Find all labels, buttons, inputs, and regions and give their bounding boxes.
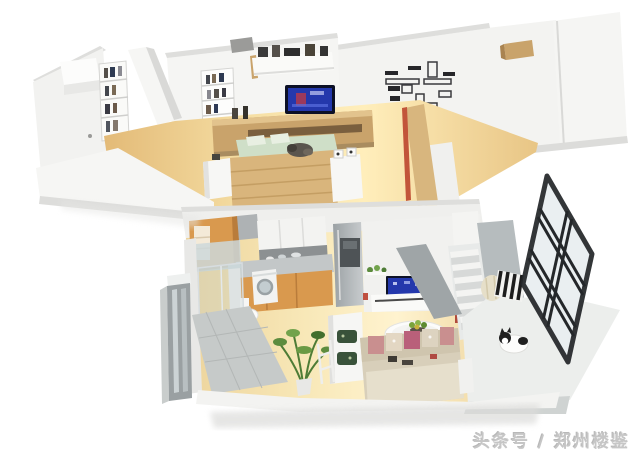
- floorplan-render: 头条号 / 郑州楼鉴: [0, 0, 640, 458]
- mirror-wardrobe: [160, 273, 192, 404]
- white-table: [60, 58, 100, 95]
- lower-floor-unit: [60, 176, 620, 428]
- tv-upper: [285, 85, 335, 114]
- watermark-text: 头条号 / 郑州楼鉴: [473, 427, 630, 452]
- upper-floor-unit: [33, 12, 628, 222]
- hood-duct: [237, 214, 259, 240]
- plant-pot: [296, 378, 312, 396]
- fridge: [333, 222, 364, 307]
- cat-on-bed: [287, 143, 313, 157]
- sofa: [360, 327, 464, 410]
- apartment-3d-scene: [0, 0, 640, 458]
- side-table: [458, 358, 474, 394]
- washing-machine: [252, 269, 278, 305]
- bookshelf: [99, 61, 129, 141]
- door-handle: [88, 134, 92, 138]
- nightstand-right: [330, 148, 363, 202]
